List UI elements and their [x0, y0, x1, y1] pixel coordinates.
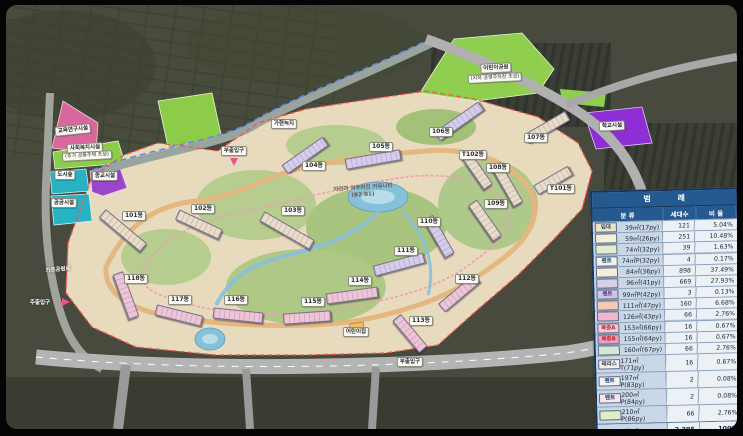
legend-category-cell: 펜트197㎡P(83py) [596, 372, 666, 390]
legend-rows: 임대39㎡(17py)1215.04%59㎡(26py)25110.48%74㎡… [593, 218, 737, 423]
legend-units-value: 251 [663, 231, 695, 242]
legend-category-cell: 펜트99㎡P(42py) [594, 288, 664, 300]
legend-swatch: 복층A [597, 323, 619, 334]
legend-ratio-value: 27.93% [696, 275, 737, 286]
legend-area-label: 39㎡(17py) [624, 222, 659, 232]
building-label: 106동 [429, 127, 453, 137]
legend-ratio-value: 2.76% [699, 404, 737, 421]
legend-area-label: 59㎡(26py) [625, 233, 660, 243]
legend-swatch: 펜트 [596, 289, 618, 300]
legend-area-label: 160㎡(67py) [623, 345, 662, 355]
legend-area-label: 84㎡(36py) [625, 266, 660, 276]
building-label: T101동 [547, 184, 575, 194]
building-label: 102동 [191, 204, 215, 214]
legend-units-value: 160 [665, 298, 697, 309]
legend-category-cell: 테라스171㎡T(71py) [596, 355, 666, 373]
legend-ratio-value: 0.67% [698, 353, 737, 370]
legend-swatch [599, 410, 621, 421]
building-label: 109동 [484, 199, 508, 209]
scene: 101동102동103동104동105동106동107동T102동108동T10… [6, 5, 737, 429]
legend-swatch: 테라스 [598, 359, 620, 370]
legend-area-label: 171㎡T(71py) [620, 355, 663, 372]
building-label: 101동 [122, 211, 146, 221]
legend-swatch [595, 245, 617, 256]
building-label: 104동 [302, 161, 326, 171]
building-label: 113동 [409, 316, 433, 326]
legend-units-value: 16 [666, 354, 699, 371]
legend-total-units: 2,395 [668, 422, 701, 429]
legend-swatch: 펜트 [599, 393, 621, 404]
legend-swatch: 펜트 [599, 376, 621, 387]
legend-swatch [597, 300, 619, 311]
legend-units-value: 3 [664, 287, 696, 298]
legend-category-cell: 임대39㎡(17py) [593, 221, 663, 233]
building-label: T102동 [459, 150, 487, 160]
legend-units-value: 39 [663, 243, 695, 254]
legend-ratio-value: 0.67% [697, 320, 737, 331]
legend-units-value: 4 [663, 254, 695, 265]
legend-swatch [595, 233, 617, 244]
legend-ratio-value: 0.08% [699, 387, 737, 404]
legend-swatch [598, 345, 620, 356]
pond-highlight [202, 334, 218, 344]
legend-area-label: 197㎡P(83py) [620, 372, 663, 389]
legend-ratio-value: 0.67% [697, 331, 737, 342]
building-label: 110동 [417, 217, 441, 227]
legend-units-value: 898 [664, 265, 696, 276]
facility-label: 학교시설 [599, 120, 626, 131]
legend-total-label: 합 계 [598, 423, 668, 429]
legend-ratio-value: 0.08% [698, 370, 737, 387]
legend-row: 펜트197㎡P(83py)20.08% [596, 369, 737, 390]
legend-swatch: 복층B [597, 334, 619, 345]
legend-units-value: 66 [666, 343, 698, 354]
legend-category-cell: 펜트200㎡P(84py) [597, 389, 667, 407]
legend-units-value: 2 [666, 371, 699, 388]
facility-label: 도시숲 [54, 170, 75, 180]
legend-area-label: 99㎡P(42py) [622, 289, 660, 299]
legend-units-value: 2 [667, 388, 700, 405]
legend-area-label: 74㎡P(32py) [621, 255, 659, 265]
entrance-arrow-icon [62, 298, 70, 306]
building-label: 117동 [168, 295, 192, 305]
legend-swatch [596, 278, 618, 289]
legend-swatch: 임대 [595, 222, 617, 233]
legend-units-value: 16 [665, 321, 697, 332]
legend-row: 210㎡P(86py)662.76% [597, 403, 737, 424]
legend-area-label: 200㎡P(84py) [621, 389, 664, 406]
legend-units-value: 121 [663, 220, 695, 231]
legend-ratio-value: 10.48% [695, 230, 737, 241]
legend-units-value: 66 [665, 310, 697, 321]
legend-ratio-value: 2.76% [697, 309, 737, 320]
building-label: 115동 [301, 297, 325, 307]
building-label: 111동 [394, 246, 418, 256]
terrain-shade [186, 5, 426, 85]
legend-col-units: 세대수 [663, 206, 696, 220]
legend-units-value: 16 [665, 332, 697, 343]
legend-category-cell: 210㎡P(86py) [597, 406, 667, 424]
legend-ratio-value: 5.04% [695, 219, 737, 230]
legend-area-label: 111㎡(47py) [622, 300, 661, 310]
legend-panel: 범 례 분 류 세대수 비 율 임대39㎡(17py)1215.04%59㎡(2… [590, 187, 737, 429]
legend-ratio-value: 2.76% [698, 342, 737, 353]
building-label: 108동 [486, 163, 510, 173]
legend-area-label: 210㎡P(86py) [621, 406, 664, 423]
entrance-arrow-icon [230, 158, 238, 166]
legend-swatch [597, 312, 619, 323]
facility-label: 어린이집 [343, 327, 369, 337]
building-label: 105동 [369, 142, 393, 152]
legend-row: 테라스171㎡T(71py)160.67% [596, 352, 737, 373]
legend-ratio-value: 6.68% [697, 297, 737, 308]
legend-units-value: 669 [664, 276, 696, 287]
legend-area-label: 126㎡(43py) [623, 311, 662, 321]
entrance-label: 주출입구 [30, 298, 50, 306]
legend-ratio-value: 0.17% [695, 253, 737, 264]
legend-area-label: 96㎡(41py) [626, 278, 661, 288]
legend-col-ratio: 비 율 [696, 205, 736, 219]
legend-swatch: 펜트 [596, 256, 618, 267]
legend-area-label: 153㎡(66py) [623, 322, 662, 332]
legend-total-ratio: 100% [700, 421, 737, 429]
building-label: 103동 [281, 206, 305, 216]
road-branch [372, 367, 376, 429]
building-label: 116동 [224, 295, 248, 305]
legend-row: 펜트200㎡P(84py)20.08% [597, 386, 737, 407]
building-label: 107동 [524, 133, 548, 143]
entrance-label: 부출입구 [397, 357, 423, 367]
legend-ratio-value: 1.63% [695, 242, 737, 253]
legend-area-label: 155㎡(64py) [623, 333, 662, 343]
legend-ratio-value: 0.13% [696, 286, 737, 297]
legend-swatch [596, 267, 618, 278]
facility-label: 종교시설 [92, 171, 118, 181]
entrance-label: 부출입구 [221, 146, 247, 156]
legend-area-label: 74㎡(32py) [625, 244, 660, 254]
facility-label: 공공시설 [51, 198, 77, 208]
building-label: 112동 [455, 274, 479, 284]
building-label: 114동 [348, 276, 372, 286]
photo-frame: 101동102동103동104동105동106동107동T102동108동T10… [0, 0, 743, 436]
road-branch [246, 369, 250, 429]
legend-ratio-value: 37.49% [696, 264, 737, 275]
facility-label: 가현녹지 [271, 119, 297, 129]
building-label: 118동 [124, 274, 148, 284]
legend-units-value: 66 [667, 405, 700, 422]
